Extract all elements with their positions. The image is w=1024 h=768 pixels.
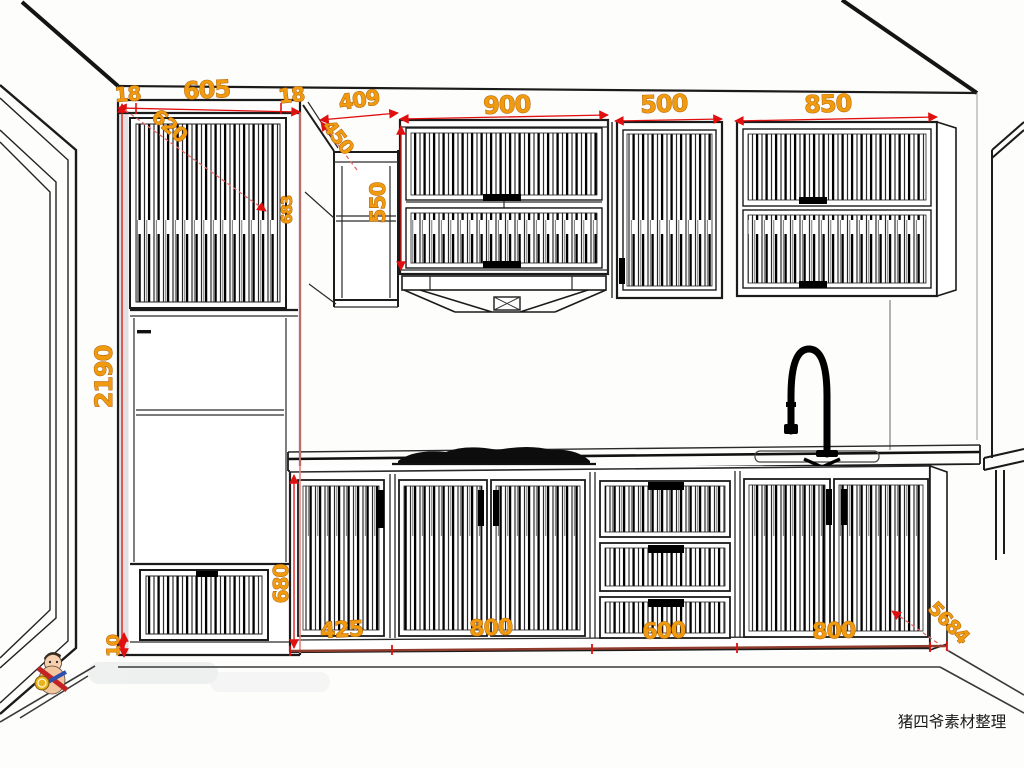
mascot-badge bbox=[35, 676, 49, 690]
drawing-canvas: 18 605 18 620 409 450 900 500 850 550 68… bbox=[0, 0, 1024, 768]
wall-850-door-top-slats bbox=[748, 134, 926, 200]
base-800r-door-a-slats bbox=[749, 485, 825, 631]
dim-line-500 bbox=[615, 119, 722, 121]
tall-bottom-door-slats bbox=[146, 576, 262, 634]
base-cabinet-800-right bbox=[744, 479, 928, 637]
faucet-base bbox=[816, 450, 838, 457]
dim-label-800-right: 800 bbox=[812, 618, 856, 645]
corner-shelf-face bbox=[334, 152, 398, 307]
tall-middle-handle bbox=[137, 330, 151, 333]
wall-850-handle-bottom bbox=[799, 281, 827, 288]
base-600-handle-2 bbox=[648, 545, 684, 553]
base-800l-door-b-slats bbox=[496, 486, 580, 630]
wall-850-side-panel bbox=[937, 122, 956, 296]
tall-upper-door-slats bbox=[136, 124, 280, 302]
base-800l-handle-a bbox=[478, 490, 484, 526]
faucet-spout-tip bbox=[784, 424, 798, 434]
faucet-collar bbox=[786, 402, 796, 407]
base-800r-handle-b bbox=[841, 489, 847, 525]
right-wall-window bbox=[984, 122, 1024, 560]
base-cabinet-425 bbox=[298, 480, 384, 636]
dim-label-680: 680 bbox=[269, 565, 293, 604]
wall-cabinet-500 bbox=[617, 122, 722, 298]
base-600-handle-3 bbox=[648, 599, 684, 607]
base-800l-handle-b bbox=[493, 490, 499, 526]
floor-lines bbox=[0, 650, 1024, 722]
wall-500-handle bbox=[619, 258, 625, 284]
wall-500-door-slats bbox=[627, 134, 712, 286]
dim-label-2190: 2190 bbox=[90, 345, 118, 408]
countertop-front-edge bbox=[288, 452, 980, 459]
base-800r-handle-a bbox=[826, 489, 832, 525]
base-800l-door-a-slats bbox=[404, 486, 482, 630]
dim-label-800-left: 800 bbox=[469, 615, 513, 642]
faucet bbox=[784, 349, 840, 475]
wall-900-door-bottom-slats bbox=[411, 213, 597, 263]
wall-900-handle-bottom bbox=[483, 261, 521, 268]
wall-cabinet-850 bbox=[737, 122, 956, 296]
dim-label-683: 683 bbox=[278, 195, 296, 224]
base-600-handle-1 bbox=[648, 482, 684, 490]
ceiling-corner-lines bbox=[22, 0, 977, 93]
dim-label-425: 425 bbox=[320, 617, 364, 644]
left-door-inner-frames bbox=[0, 98, 68, 703]
dim-label-18-left: 18 bbox=[114, 81, 142, 107]
range-hood bbox=[402, 276, 606, 312]
base-cabinet-600-drawers bbox=[600, 481, 730, 638]
base-cabinet-800-left bbox=[399, 480, 585, 636]
base-425-door-slats bbox=[303, 486, 379, 630]
mascot-eye-right bbox=[56, 661, 58, 663]
wall-filler-strip bbox=[608, 120, 612, 298]
hood-canopy-band bbox=[402, 276, 606, 290]
base-800r-door-b-slats bbox=[839, 485, 923, 631]
dim-label-18-right: 18 bbox=[277, 82, 305, 109]
wall-900-door-top-slats bbox=[411, 133, 597, 195]
wall-900-handle-top bbox=[483, 194, 521, 201]
dim-label-605: 605 bbox=[182, 75, 231, 105]
wall-850-door-bottom-slats bbox=[748, 215, 926, 283]
dim-label-10: 10 bbox=[104, 634, 124, 657]
tall-bottom-handle bbox=[196, 571, 218, 577]
kitchen-elevation-drawing: 18 605 18 620 409 450 900 500 850 550 68… bbox=[0, 0, 1024, 768]
base-600-drawer-1-slats bbox=[605, 486, 725, 532]
dim-label-500: 500 bbox=[640, 89, 688, 119]
wall-cabinet-900 bbox=[400, 120, 608, 274]
base-425-handle bbox=[377, 490, 384, 528]
base-600-drawer-2-slats bbox=[605, 548, 725, 586]
tall-cabinet-side-shade bbox=[119, 114, 129, 654]
dim-label-900: 900 bbox=[483, 90, 531, 120]
wall-850-handle-top bbox=[799, 197, 827, 204]
mascot-eye-left bbox=[49, 661, 51, 663]
faucet-arch bbox=[791, 349, 827, 454]
dim-label-850: 850 bbox=[804, 89, 852, 119]
dim-label-550: 550 bbox=[366, 182, 390, 223]
caption-text: 猪四爷素材整理 bbox=[898, 713, 1007, 731]
dim-label-600: 600 bbox=[642, 618, 686, 645]
dim-label-409: 409 bbox=[337, 85, 381, 115]
